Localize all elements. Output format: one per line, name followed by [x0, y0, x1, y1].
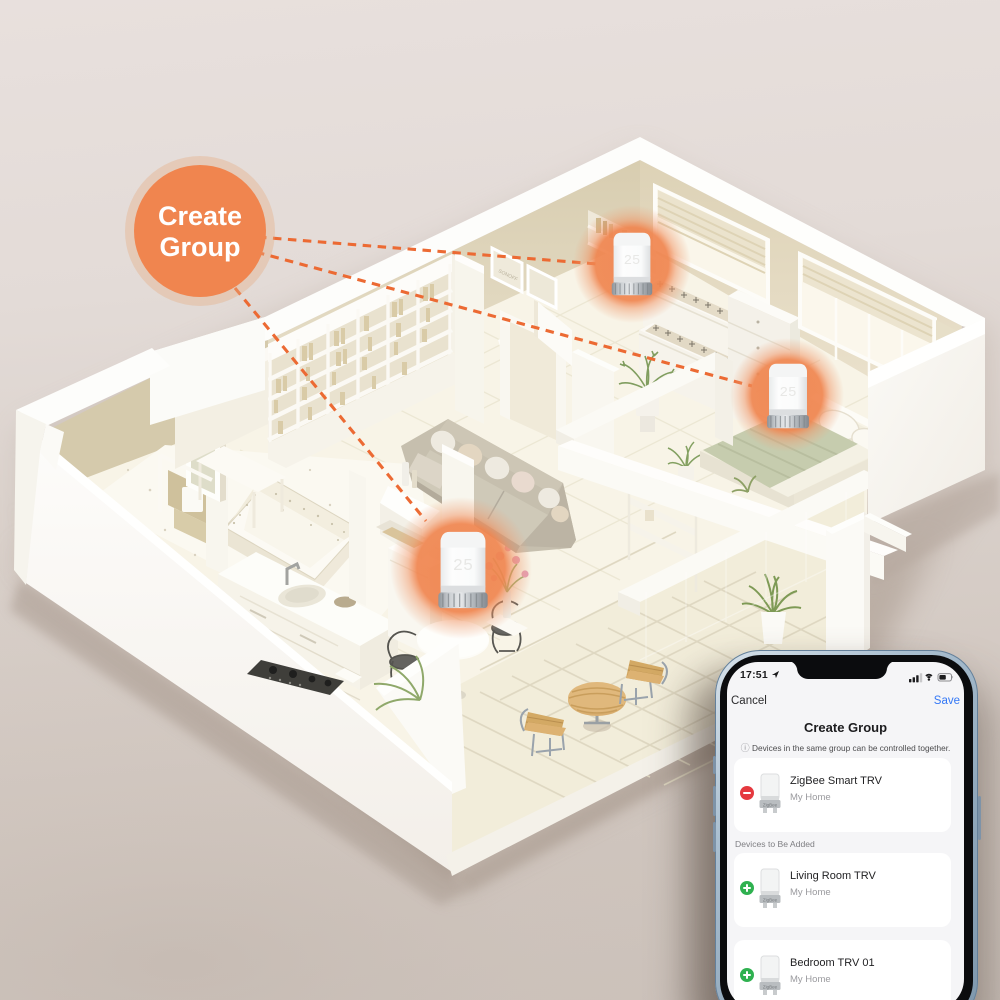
svg-text:ZigBee: ZigBee: [763, 803, 778, 808]
svg-text:ZigBee: ZigBee: [763, 985, 778, 990]
svg-text:Create: Create: [158, 201, 242, 231]
svg-text:25: 25: [779, 385, 796, 401]
svg-text:25: 25: [453, 557, 473, 576]
svg-text:ZigBee: ZigBee: [763, 898, 778, 903]
svg-text:Group: Group: [160, 232, 241, 262]
svg-text:25: 25: [624, 254, 641, 269]
